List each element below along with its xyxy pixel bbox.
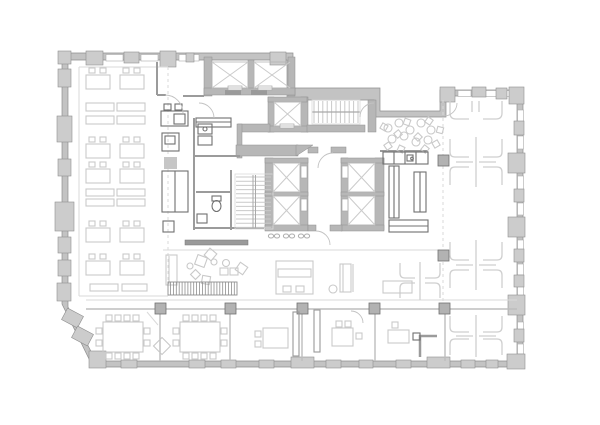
chair: [133, 353, 139, 359]
core-wall: [268, 97, 307, 102]
pilaster: [186, 53, 194, 62]
door-arc: [316, 231, 330, 245]
pilaster: [62, 308, 84, 328]
core-wall: [265, 225, 308, 231]
chair: [144, 328, 150, 334]
desk-unit: [89, 221, 95, 226]
pilaster: [359, 360, 373, 368]
window: [518, 176, 524, 190]
pilaster: [508, 217, 525, 237]
cabinet-fill: [164, 157, 177, 169]
long-table: [86, 103, 114, 111]
pilaster: [58, 260, 71, 276]
pilaster: [58, 237, 71, 253]
pilaster: [440, 87, 455, 102]
lounge-sofa: [340, 264, 351, 292]
round-table: [211, 259, 217, 265]
chair: [115, 315, 121, 321]
cubicle-desk: [450, 167, 469, 185]
pilaster: [508, 295, 525, 315]
elevator-door: [301, 166, 307, 178]
desk-unit: [123, 68, 129, 73]
wc-fixture: [197, 214, 207, 223]
round-table: [427, 126, 435, 134]
long-table: [86, 116, 114, 124]
long-table: [117, 116, 145, 124]
long-table: [122, 284, 147, 291]
meeting-table: [345, 321, 351, 327]
round-table: [187, 263, 193, 269]
desk-unit: [100, 254, 106, 259]
floor-plan-svg: [0, 0, 600, 425]
kitchen-island: [296, 286, 304, 292]
chair: [201, 315, 207, 321]
core-wall: [341, 158, 384, 163]
round-table: [223, 260, 230, 267]
core-wall: [341, 192, 384, 196]
meeting-table: [255, 341, 261, 347]
cubicle-desk: [450, 242, 469, 260]
desk-unit: [100, 137, 106, 142]
pilaster: [514, 249, 524, 262]
window: [518, 264, 524, 275]
chair: [124, 315, 130, 321]
window: [458, 91, 471, 97]
whiteboard: [314, 310, 320, 352]
chair: [192, 315, 198, 321]
chair: [221, 328, 227, 334]
kitchen-island: [278, 269, 311, 277]
pilaster: [58, 159, 71, 176]
pilaster: [221, 360, 236, 368]
entry-furniture: [165, 136, 175, 144]
cubicle-desk: [400, 263, 415, 278]
desk-unit: [100, 162, 106, 167]
round-table: [329, 285, 337, 293]
lounge-chair: [191, 270, 201, 280]
column: [438, 250, 449, 261]
stool: [304, 234, 309, 238]
window: [141, 55, 158, 62]
cubicle-desk: [483, 101, 502, 119]
desk-unit: [134, 221, 140, 226]
desk-unit: [86, 144, 110, 158]
column: [438, 155, 449, 166]
stool: [268, 234, 273, 238]
pilaster: [396, 360, 411, 368]
pilaster: [461, 360, 475, 368]
chair: [183, 353, 189, 359]
desk-unit: [120, 169, 144, 183]
core-wall: [265, 158, 308, 163]
chair: [96, 340, 102, 346]
pilaster: [509, 87, 524, 104]
diamond-table: [154, 338, 171, 355]
core-wall: [331, 147, 346, 153]
chair: [106, 353, 112, 359]
desk-unit: [123, 137, 129, 142]
pilaster: [259, 360, 274, 368]
kitchenette-fixture: [198, 136, 212, 145]
chair: [173, 340, 179, 346]
desk-unit: [100, 221, 106, 226]
desk-unit: [134, 254, 140, 259]
pilaster: [514, 121, 524, 135]
meeting-table: [263, 328, 288, 348]
pilaster: [121, 360, 137, 368]
shaft-vent: [225, 90, 241, 95]
conference-table: [103, 322, 143, 352]
desk-unit: [134, 137, 140, 142]
desk-unit: [86, 228, 110, 242]
desk-unit: [134, 68, 140, 73]
core-wall: [330, 225, 342, 231]
pilaster: [124, 52, 139, 63]
core-wall: [341, 225, 384, 231]
bench: [185, 240, 248, 245]
cubicle-desk: [483, 139, 502, 157]
core-wall: [204, 88, 295, 95]
chair: [183, 315, 189, 321]
toilet: [212, 201, 221, 212]
cafe-chair: [425, 117, 433, 125]
desk-unit: [123, 162, 129, 167]
kitchenette-fixture: [198, 124, 212, 134]
column: [369, 303, 380, 314]
pilaster: [486, 360, 498, 368]
core-wall: [308, 147, 318, 153]
door-arc: [351, 311, 363, 323]
cubicle-desk: [450, 339, 469, 355]
desk-unit: [89, 68, 95, 73]
cubicle-desk: [450, 270, 469, 288]
chair: [201, 353, 207, 359]
chair: [221, 340, 227, 346]
pilaster: [57, 116, 72, 142]
core-wall: [368, 100, 376, 132]
cafe-chair: [432, 140, 440, 148]
shaft-vent: [251, 90, 267, 95]
pilaster: [326, 360, 341, 368]
stool: [283, 234, 288, 238]
cubicle-desk: [483, 339, 502, 355]
cubicle-desk: [400, 283, 415, 298]
desk-unit: [89, 162, 95, 167]
core-wall: [236, 145, 298, 156]
pilaster: [514, 329, 524, 342]
conference-table: [180, 322, 220, 352]
desk-unit: [120, 261, 144, 275]
pilaster: [508, 153, 525, 173]
desk-unit: [86, 261, 110, 275]
kitchen-island: [283, 286, 291, 292]
round-table: [417, 119, 425, 127]
column: [439, 303, 450, 314]
pilaster: [160, 51, 176, 67]
stool: [274, 234, 279, 238]
desk-unit: [89, 137, 95, 142]
layer-cubicles: [400, 101, 502, 357]
pilaster: [89, 351, 106, 368]
pilaster: [55, 202, 74, 231]
cubicle-desk: [483, 270, 502, 288]
desk-unit: [120, 144, 144, 158]
cubicle-desk: [483, 316, 502, 332]
meeting-table: [392, 322, 398, 328]
meeting-table: [356, 333, 362, 339]
pilaster: [427, 357, 450, 368]
cubicle-desk: [450, 101, 469, 119]
round-table: [395, 119, 403, 127]
round-table: [424, 136, 432, 144]
pilaster: [58, 51, 71, 64]
long-table: [86, 189, 114, 196]
core-wall: [238, 124, 270, 132]
meeting-table: [336, 321, 342, 327]
desk-unit: [120, 75, 144, 89]
elevator-door: [301, 199, 307, 211]
long-table: [117, 199, 145, 206]
desk-unit: [100, 68, 106, 73]
chair: [192, 353, 198, 359]
pilaster: [189, 360, 205, 368]
pilaster: [58, 69, 71, 87]
lounge-chair: [220, 268, 228, 275]
long-table: [86, 199, 114, 206]
long-table: [117, 189, 145, 196]
chair: [124, 353, 130, 359]
elevator-door: [342, 166, 348, 178]
pilaster: [472, 87, 486, 97]
meeting-table: [255, 331, 261, 337]
stool: [289, 234, 294, 238]
pilaster: [270, 52, 286, 65]
pilaster: [514, 275, 524, 287]
window: [518, 136, 524, 149]
chair: [144, 340, 150, 346]
long-table: [117, 103, 145, 111]
pilaster: [86, 51, 103, 65]
window: [106, 55, 123, 62]
desk-unit: [89, 254, 95, 259]
pilaster: [507, 354, 525, 369]
pilaster: [514, 189, 524, 202]
sink: [411, 157, 414, 160]
cubicle-desk: [425, 283, 440, 298]
lounge-chair: [230, 268, 238, 275]
desk-unit: [86, 75, 110, 89]
cubicle-desk: [483, 167, 502, 185]
column: [225, 303, 236, 314]
cubicle-desk: [450, 316, 469, 332]
desk-unit: [123, 254, 129, 259]
pilaster: [57, 283, 71, 301]
chair: [133, 315, 139, 321]
desk-unit: [120, 228, 144, 242]
whiteboard: [293, 312, 299, 356]
cafe-chair: [403, 118, 411, 126]
cafe-chair: [436, 126, 443, 133]
chair: [173, 328, 179, 334]
window: [518, 286, 524, 296]
core-wall: [248, 60, 254, 90]
window: [518, 344, 524, 354]
hob: [203, 127, 207, 131]
core-wall: [307, 125, 365, 132]
wall-l: [420, 336, 437, 357]
chair: [96, 328, 102, 334]
door-arc: [318, 153, 333, 168]
chair: [210, 315, 216, 321]
desk-unit: [86, 169, 110, 183]
cafe-chair: [414, 133, 422, 141]
elevator-door: [342, 199, 348, 211]
desk-unit: [134, 162, 140, 167]
cubicle-desk: [450, 139, 469, 157]
core-wall: [265, 192, 308, 196]
cubicle-desk: [483, 242, 502, 260]
desk-unit: [123, 221, 129, 226]
column: [155, 303, 166, 314]
core-wall: [308, 225, 316, 231]
floor-plan-page: [0, 0, 600, 425]
long-table: [90, 284, 118, 291]
entry-furniture: [174, 114, 185, 124]
chair: [106, 315, 112, 321]
cubicle-desk: [425, 263, 440, 278]
window: [518, 203, 524, 215]
pilaster: [496, 88, 507, 99]
chair: [115, 353, 121, 359]
door-arc: [199, 103, 214, 118]
meeting-table: [332, 328, 353, 346]
meeting-table: [388, 330, 409, 343]
chair: [210, 353, 216, 359]
stool: [298, 234, 303, 238]
